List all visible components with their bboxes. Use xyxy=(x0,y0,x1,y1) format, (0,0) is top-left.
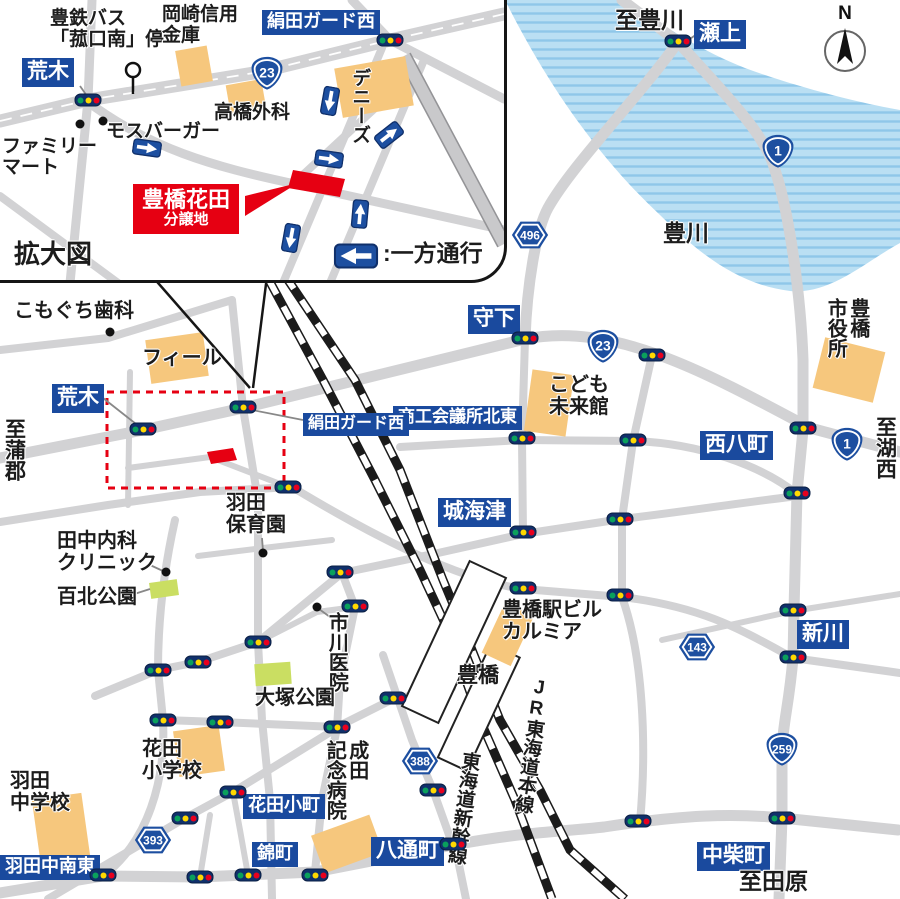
traffic-light-icon xyxy=(187,871,214,884)
map-page: 至豊川瀬上豊川守下こども 未来館豊橋 市役所至湖西西八町商工会議所北東城海津絹田… xyxy=(0,0,900,899)
hyakukita-park-label: 百北公園 xyxy=(57,586,137,608)
route-496-shield: 496 xyxy=(510,219,550,252)
svg-text:259: 259 xyxy=(772,743,792,757)
route-259-shield: 259 xyxy=(764,731,801,768)
traffic-light-icon xyxy=(665,35,692,48)
traffic-light-icon xyxy=(235,869,262,882)
shoko-kaigisho-sign: 商工会議所北東 xyxy=(393,406,522,430)
traffic-light-icon xyxy=(380,692,407,705)
traffic-light-icon xyxy=(150,714,177,727)
traffic-light-icon xyxy=(185,656,212,669)
to-tahara-label: 至田原 xyxy=(739,869,808,895)
shirokaizu-sign: 城海津 xyxy=(438,498,511,527)
traffic-light-icon xyxy=(512,332,539,345)
haneda-jhs-label: 羽田 中学校 xyxy=(10,770,70,815)
traffic-light-icon xyxy=(607,589,634,602)
traffic-light-icon xyxy=(275,481,302,494)
route-1-shield-east: 1 xyxy=(829,426,866,463)
traffic-light-icon xyxy=(342,600,369,613)
svg-text:1: 1 xyxy=(774,143,782,159)
poi-dot xyxy=(76,120,85,129)
dennys-label: デニーズ xyxy=(349,68,370,144)
feel-label: フィール xyxy=(142,347,222,369)
traffic-light-icon xyxy=(145,664,172,677)
poi-dot xyxy=(99,117,108,126)
haneda-naka-nanto-sign: 羽田中南東 xyxy=(0,855,100,880)
jr-tokaido-line-label: JR東海道本線 xyxy=(511,676,551,815)
araki-sign: 荒木 xyxy=(52,384,104,413)
narita-hospital-label: 成田 記念病院 xyxy=(323,740,368,820)
nakashiba-sign: 中柴町 xyxy=(697,842,770,871)
bus-stop-label: 豊鉄バス 「菰口南」停 xyxy=(50,8,164,51)
compass-icon xyxy=(818,23,872,75)
svg-text:23: 23 xyxy=(259,65,275,81)
toyokawa-river-label: 豊川 xyxy=(663,221,709,247)
traffic-light-icon xyxy=(790,422,817,435)
oneway-legend-arrow xyxy=(333,244,379,269)
traffic-light-icon xyxy=(172,812,199,825)
traffic-light-icon xyxy=(90,869,117,882)
traffic-light-icon xyxy=(130,423,157,436)
oneway-arrow-3 xyxy=(313,149,344,170)
route-143-shield: 143 xyxy=(677,631,717,664)
poi-dot xyxy=(259,549,268,558)
traffic-light-icon xyxy=(639,349,666,362)
kodomo-mirai-label: こども 未来館 xyxy=(549,374,609,419)
poi-dot xyxy=(106,328,115,337)
oneway-arrow-6 xyxy=(280,222,302,254)
hanada-site-callout: 豊橋花田 分譲地 xyxy=(133,184,239,234)
to-gamagori-label: 至蒲郡 xyxy=(2,418,26,481)
oneway-arrow-4 xyxy=(131,138,162,159)
traffic-light-icon xyxy=(245,636,272,649)
segami-sign: 瀬上 xyxy=(694,20,746,49)
traffic-light-icon xyxy=(377,34,404,47)
city-hall-label: 豊橋 市役所 xyxy=(824,298,869,358)
traffic-light-icon xyxy=(510,526,537,539)
svg-text:143: 143 xyxy=(687,641,707,655)
traffic-light-icon xyxy=(625,815,652,828)
traffic-light-icon xyxy=(784,487,811,500)
okazaki-shinkin-label: 岡崎信用 金庫 xyxy=(162,4,238,47)
komoguchi-dental-label: こもぐち歯科 xyxy=(14,300,134,322)
traffic-light-icon xyxy=(324,721,351,734)
nishiki-cho-sign: 錦町 xyxy=(252,842,298,867)
station-building-label: 豊橋駅ビル カルミア xyxy=(502,599,602,644)
otsuka-park-label: 大塚公園 xyxy=(255,687,335,709)
traffic-light-icon xyxy=(302,869,329,882)
compass: N xyxy=(818,4,872,80)
oneway-arrow-2 xyxy=(372,119,405,150)
svg-text:1: 1 xyxy=(843,436,851,452)
hanada-elementary-label: 花田 小学校 xyxy=(142,738,202,783)
to-kosai-label: 至湖西 xyxy=(873,416,897,479)
poi-dot xyxy=(162,568,171,577)
svg-text:388: 388 xyxy=(410,755,430,769)
hattori-cho-sign: 八通町 xyxy=(371,837,444,866)
traffic-light-icon xyxy=(440,838,467,851)
route-1-shield-north: 1 xyxy=(760,133,797,170)
traffic-light-icon xyxy=(420,784,447,797)
familymart-label: ファミリー マート xyxy=(2,136,97,179)
svg-text:496: 496 xyxy=(520,229,540,243)
nishihatcho-sign: 西八町 xyxy=(700,431,773,460)
shinkawa-sign: 新川 xyxy=(797,620,849,649)
araki-sign-inset: 荒木 xyxy=(22,58,74,87)
tanaka-clinic-label: 田中内科 クリニック xyxy=(57,530,157,575)
oneway-arrow-5 xyxy=(350,199,369,229)
route-393-shield: 393 xyxy=(133,824,173,857)
route-23-shield: 23 xyxy=(585,328,622,365)
route-388-shield: 388 xyxy=(400,745,440,778)
traffic-light-icon xyxy=(780,604,807,617)
oneway-legend-text: :一方通行 xyxy=(383,241,483,267)
oneway-arrow-1 xyxy=(319,85,341,117)
enlarged-map-inset: 豊鉄バス 「菰口南」停岡崎信用 金庫絹田ガード西荒木ファミリー マートモスバーガ… xyxy=(0,0,507,283)
traffic-light-icon xyxy=(509,432,536,445)
callout-line2: 分譲地 xyxy=(142,212,230,229)
ichikawa-clinic-label: 市川医院 xyxy=(325,612,347,692)
route-23-shield-inset: 23 xyxy=(249,55,286,92)
traffic-light-icon xyxy=(769,812,796,825)
poi-dot xyxy=(313,603,322,612)
mos-burger-label: モスバーガー xyxy=(106,121,220,142)
traffic-light-icon xyxy=(75,94,102,107)
kinuta-guard-west-sign: 絹田ガード西 xyxy=(303,413,409,436)
haneda-nursery-label: 羽田 保育園 xyxy=(226,492,286,537)
traffic-light-icon xyxy=(327,566,354,579)
traffic-light-icon xyxy=(510,582,537,595)
morishita-sign: 守下 xyxy=(468,305,520,334)
callout-line1: 豊橋花田 xyxy=(142,187,230,212)
traffic-light-icon xyxy=(780,651,807,664)
traffic-light-icon xyxy=(607,513,634,526)
hanada-komachi-sign: 花田小町 xyxy=(243,794,325,819)
svg-text:23: 23 xyxy=(595,338,611,354)
toyohashi-station-label: 豊橋 xyxy=(457,664,499,688)
svg-text:393: 393 xyxy=(143,834,163,848)
takahashi-clinic-label: 高橋外科 xyxy=(214,102,290,123)
traffic-light-icon xyxy=(207,716,234,729)
traffic-light-icon xyxy=(220,786,247,799)
compass-north-label: N xyxy=(818,4,872,23)
inset-overlay: 豊鉄バス 「菰口南」停岡崎信用 金庫絹田ガード西荒木ファミリー マートモスバーガ… xyxy=(0,0,505,282)
traffic-light-icon xyxy=(620,434,647,447)
kinuta-guard-west-sign-inset: 絹田ガード西 xyxy=(262,10,380,35)
kakudaizu-caption: 拡大図 xyxy=(14,240,92,269)
traffic-light-icon xyxy=(230,401,257,414)
to-toyokawa-label: 至豊川 xyxy=(615,8,684,34)
